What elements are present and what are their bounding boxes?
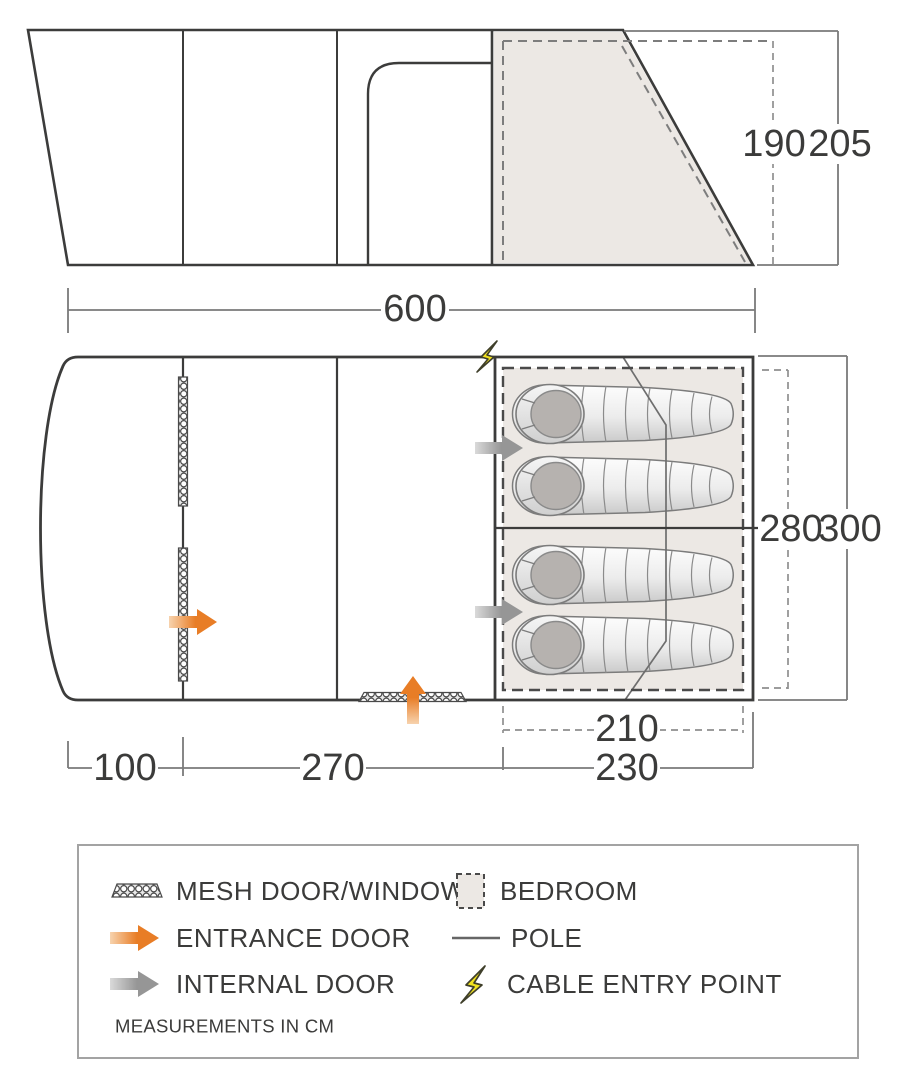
dim-length-label: 600 [383,288,446,330]
bedroom-swatch-icon [457,874,484,908]
diagram-canvas: 190 205 600 [0,0,900,1086]
dim-inner-width-label: 280 [759,508,822,550]
legend-label-bedroom: BEDROOM [500,876,638,906]
elevation-bedroom-shading [494,32,751,263]
dim-inner-height-label: 190 [742,123,805,165]
dim-outer-width-label: 300 [818,508,881,550]
dim-rear-length-label: 230 [595,747,658,789]
sleeping-bag-2 [513,457,734,516]
mesh-door-window-icon [112,884,162,897]
measurements-note: MEASUREMENTS IN CM [115,1016,334,1037]
entrance-door-arrow-side [169,609,217,635]
mesh-panel-lower [179,548,188,681]
floorplan-view: 280 300 210 100 270 230 [41,341,882,789]
mesh-panel-upper [179,377,188,506]
tent-dimensions-diagram: 190 205 600 [0,0,900,1086]
sleeping-bag-1 [513,385,734,444]
legend: MESH DOOR/WINDOW ENTRANCE DOOR INTERNAL … [78,845,858,1058]
dim-bedroom-length-label: 210 [595,708,658,750]
dim-middle-length-label: 270 [301,747,364,789]
elevation-door-outline [368,63,491,264]
legend-label-pole: POLE [511,923,582,953]
elevation-view: 190 205 600 [28,30,872,333]
dim-front-length-label: 100 [93,747,156,789]
sleeping-bag-4 [513,616,734,675]
legend-label-internal-door: INTERNAL DOOR [176,969,395,999]
legend-label-entrance-door: ENTRANCE DOOR [176,923,411,953]
legend-label-mesh-door-window: MESH DOOR/WINDOW [176,876,466,906]
legend-label-cable-entry-point: CABLE ENTRY POINT [507,969,782,999]
sleeping-bag-3 [513,546,734,605]
dim-outer-height-label: 205 [808,123,871,165]
